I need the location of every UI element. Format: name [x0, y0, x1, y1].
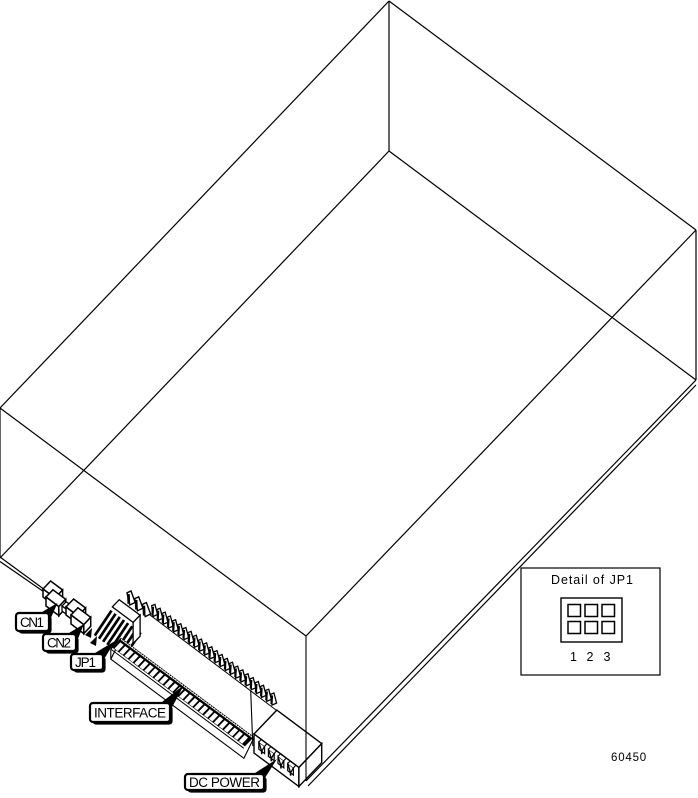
svg-text:1: 1 [570, 650, 577, 664]
svg-text:JP1: JP1 [75, 655, 96, 670]
svg-text:Detail of JP1: Detail of JP1 [551, 573, 633, 587]
svg-text:DC POWER: DC POWER [189, 775, 260, 790]
svg-text:60450: 60450 [611, 752, 647, 764]
svg-text:3: 3 [604, 650, 611, 664]
svg-text:INTERFACE: INTERFACE [94, 705, 166, 720]
svg-text:CN2: CN2 [47, 635, 71, 650]
svg-text:CN1: CN1 [20, 615, 44, 630]
svg-text:2: 2 [587, 650, 594, 664]
